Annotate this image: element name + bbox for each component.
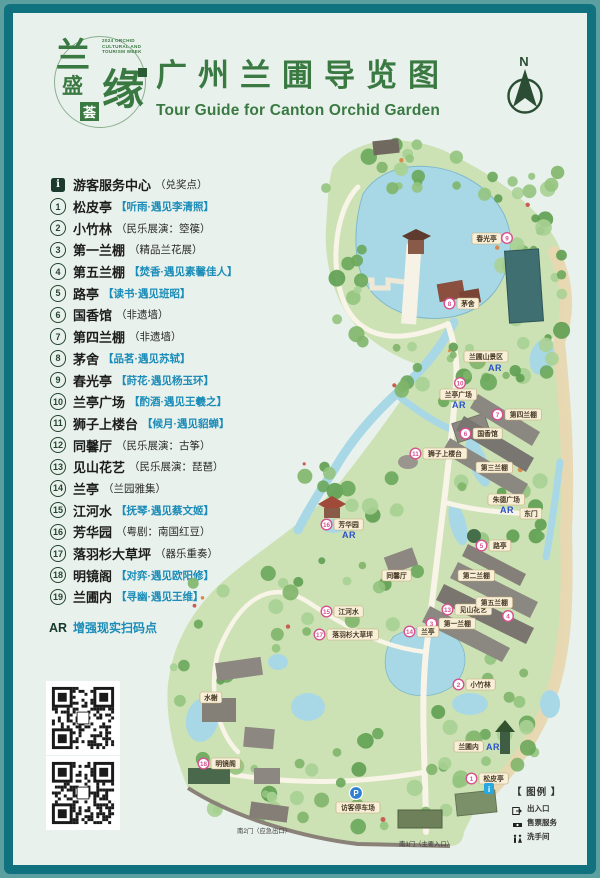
svg-text:13: 13 [444,607,452,614]
map-tag-label: 第五兰棚 [476,597,513,608]
number-marker: 13 [43,459,73,476]
number-marker: 8 [43,350,73,367]
legend-name: 松皮亭 [73,197,112,216]
svg-text:5: 5 [480,543,484,550]
legend-name: 见山花艺 [73,457,125,476]
logo-week-text: 2024 ORCHID CULTURAL AND TOURISM WEEK [102,38,142,55]
number-marker: 18 [43,567,73,584]
legend-name: 明镜阁 [73,566,112,585]
svg-text:第三兰棚: 第三兰棚 [481,463,508,472]
legend-name: 江河水 [73,501,112,520]
svg-text:8: 8 [448,301,452,308]
svg-text:狮子上楼台: 狮子上楼台 [427,449,462,458]
svg-text:兰亭广场: 兰亭广场 [445,390,472,399]
ar-label: AR [43,621,73,635]
north-label: N [519,54,528,69]
tour-guide-poster: { "colors": { "frame_outer": "#5b9fa0", … [0,0,600,878]
map-number-marker: 1 [466,773,477,784]
number-marker: 6 [43,307,73,324]
svg-text:小竹林: 小竹林 [469,680,491,689]
svg-text:同馨厅: 同馨厅 [386,571,407,580]
map-tag-label: 狮子上楼台 [423,448,467,459]
qr-code-top [46,681,120,755]
svg-text:14: 14 [406,629,414,636]
svg-text:7: 7 [496,412,500,419]
map-key-label: 出入口 [527,803,550,814]
legend-name: 第一兰棚 [73,240,125,259]
svg-text:11: 11 [412,451,419,458]
legend-name: 国香馆 [73,305,112,324]
gate-label: 南1门（主要入口） [399,839,453,848]
svg-text:16: 16 [323,522,331,529]
map-number-marker: 8 [444,298,455,309]
visitor-info-icon: i [484,783,494,794]
map-tag-label: 明镜阁 [211,758,240,769]
number-marker: 10 [43,393,73,410]
ticket-icon [512,817,523,827]
number-marker: 9 [43,372,73,389]
logo-char-yuan: 缘 [102,56,144,117]
svg-text:国香馆: 国香馆 [477,429,498,438]
map-number-marker: 2 [453,679,464,690]
map-tag-label: 芳华园 [334,519,363,530]
svg-text:松皮亭: 松皮亭 [483,774,504,783]
legend-note: （兰园雅集） [103,481,166,496]
map-key-item: 洗手间 [512,829,584,843]
legend-name: 落羽杉大草坪 [73,544,151,563]
legend-name: 游客服务中心 [73,175,151,194]
svg-text:春光亭: 春光亭 [475,234,497,243]
svg-text:第五兰棚: 第五兰棚 [481,598,508,607]
svg-text:茅舍: 茅舍 [461,299,475,308]
map-number-marker: 5 [476,540,487,551]
number-marker: 1 [43,198,73,215]
logo-char-hui-seal: 荟 [80,102,99,121]
north-arrow-icon: N [500,52,552,124]
map-tag-label: 落羽杉大草坪 [327,629,378,640]
map-number-marker: 4 [503,611,514,622]
map-number-marker: 14 [404,626,415,637]
gate-label: 南2门（应急出口） [237,826,291,835]
entrance-icon [512,803,523,813]
map-key-title: 【 图例 】 [512,784,584,798]
map-tag-label: 国香馆 [473,428,502,439]
svg-text:朱德广场: 朱德广场 [493,495,520,504]
map-tag-label: 访客停车场 [336,802,380,813]
legend-name: 芳华园 [73,522,112,541]
ar-point-marker: AR [500,505,514,515]
map-number-marker: 13 [442,604,453,615]
map-tag-label: 第四兰棚 [505,409,542,420]
svg-text:访客停车场: 访客停车场 [341,803,375,812]
map-key-box: 【 图例 】 出入口售票服务洗手间 [512,784,584,843]
logo-seal-icon [138,68,147,77]
svg-text:东门: 东门 [524,509,538,518]
number-marker: 2 [43,220,73,237]
map-number-marker: 9 [502,233,513,244]
svg-text:1: 1 [470,776,474,783]
map-tag-label: 松皮亭 [479,773,508,784]
map-tag-label: 第一兰棚 [439,618,476,629]
number-marker: 3 [43,242,73,259]
map-number-marker: 10 [455,378,466,389]
map-number-marker: 18 [198,758,209,769]
svg-text:i: i [488,784,490,794]
legend-name: 第四兰棚 [73,327,125,346]
number-marker: 14 [43,480,73,497]
map-key-label: 售票服务 [527,817,557,828]
map-tag-label: 同馨厅 [382,570,411,581]
map-tag-label: 江河水 [334,606,363,617]
svg-text:兰圃内: 兰圃内 [458,742,479,751]
map-tag-label: 东门 [520,508,542,519]
legend-name: 兰亭广场 [73,392,125,411]
ar-point-marker: AR [486,742,500,752]
parking-icon: P [350,787,363,800]
legend-name: 狮子上楼台 [73,414,138,433]
restroom-icon [512,831,523,841]
map-tag-label: 兰亭 [417,626,439,637]
garden-map-illustration: 春光亭98茅舍兰圃山景区AR10兰亭广场AR7第四兰棚6国香馆11狮子上楼台第三… [158,132,588,862]
svg-text:15: 15 [323,609,331,616]
ar-point-marker: AR [452,400,466,410]
map-tag-label: 兰圃内 [454,741,483,752]
map-tag-label: 路亭 [489,540,511,551]
number-marker: 5 [43,285,73,302]
legend-name: 路亭 [73,284,99,303]
legend-name: 兰亭 [73,479,99,498]
svg-text:第一兰棚: 第一兰棚 [444,619,471,628]
page-title: 广州兰圃导览图 [156,50,450,95]
svg-text:兰亭: 兰亭 [421,627,435,636]
svg-text:明镜阁: 明镜阁 [215,759,236,768]
svg-text:第二兰棚: 第二兰棚 [463,571,490,580]
map-tag-label: 第二兰棚 [458,570,495,581]
svg-text:2: 2 [457,682,461,689]
svg-text:18: 18 [200,761,208,768]
svg-text:17: 17 [316,632,324,639]
ar-point-marker: AR [342,530,356,540]
number-marker: 16 [43,524,73,541]
number-marker: 7 [43,328,73,345]
map-key-item: 售票服务 [512,815,584,829]
page-subtitle: Tour Guide for Canton Orchid Garden [156,102,450,120]
legend-name: 兰圃内 [73,587,112,606]
info-marker-icon: i [43,178,73,192]
svg-text:第四兰棚: 第四兰棚 [510,410,537,419]
svg-text:10: 10 [456,380,464,387]
number-marker: 11 [43,415,73,432]
number-marker: 15 [43,502,73,519]
svg-text:4: 4 [506,613,510,620]
svg-text:9: 9 [505,235,509,242]
svg-text:江河水: 江河水 [338,607,359,616]
map-tag-label: 兰圃山景区 [464,351,508,362]
svg-text:水榭: 水榭 [203,693,218,702]
svg-text:落羽杉大草坪: 落羽杉大草坪 [332,630,373,639]
map-tag-label: 小竹林 [466,679,495,690]
legend-name: 春光亭 [73,371,112,390]
svg-text:芳华园: 芳华园 [338,520,359,529]
map-key-item: 出入口 [512,801,584,815]
number-marker: 17 [43,545,73,562]
legend-name: 同馨厅 [73,436,112,455]
svg-text:兰圃山景区: 兰圃山景区 [469,352,503,361]
logo-char-sheng: 盛 [62,70,83,100]
map-number-marker: 7 [492,409,503,420]
map-key-label: 洗手间 [527,831,550,842]
legend-name: 小竹林 [73,219,112,238]
legend-name: 第五兰棚 [73,262,125,281]
festival-logo: 兰 盛 荟 缘 2024 ORCHID CULTURAL AND TOURISM… [50,30,154,138]
number-marker: 4 [43,263,73,280]
ar-point-marker: AR [488,363,502,373]
map-tag-label: 朱德广场 [488,494,525,505]
svg-text:6: 6 [464,431,468,438]
map-tag-label: 春光亭 [472,233,501,244]
svg-text:路亭: 路亭 [493,541,507,550]
map-tag-label: 水榭 [200,692,222,703]
ar-text: 增强现实扫码点 [73,619,157,636]
map-number-marker: 16 [321,519,332,530]
map-number-marker: 6 [460,428,471,439]
map-tag-label: 兰亭广场 [440,389,477,400]
map-number-marker: 11 [410,448,421,459]
svg-text:P: P [353,789,359,798]
number-marker: 12 [43,437,73,454]
map-number-marker: 15 [321,606,332,617]
map-number-marker: 17 [314,629,325,640]
map-tag-label: 第三兰棚 [476,462,513,473]
title-block: 广州兰圃导览图 Tour Guide for Canton Orchid Gar… [156,50,450,120]
map-tag-label: 茅舍 [457,298,479,309]
legend-name: 茅舍 [73,349,99,368]
number-marker: 19 [43,589,73,606]
qr-code-bottom [46,756,120,830]
